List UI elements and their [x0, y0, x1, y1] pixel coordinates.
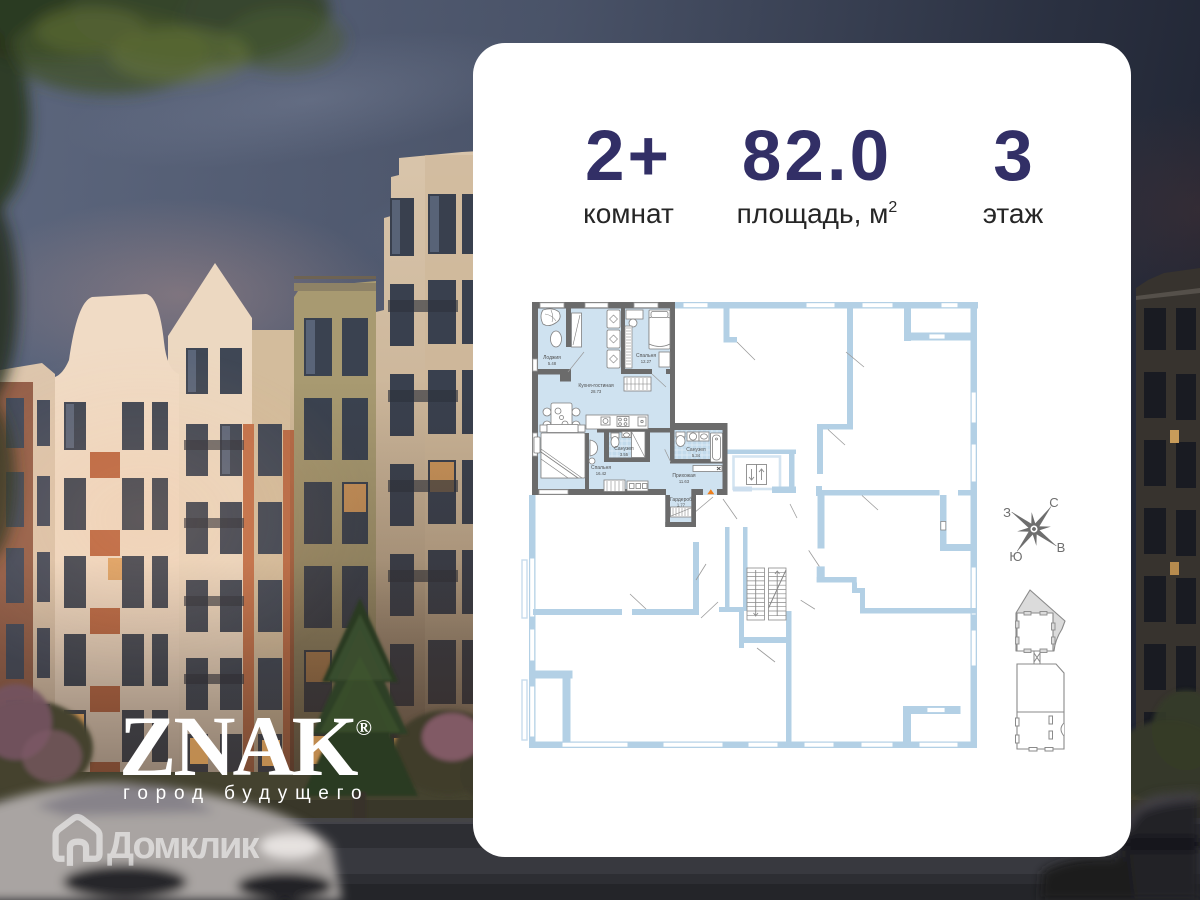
- svg-text:12.27: 12.27: [641, 359, 652, 364]
- svg-text:11.63: 11.63: [679, 479, 690, 484]
- svg-text:5.34: 5.34: [692, 453, 701, 458]
- svg-text:З: З: [1003, 505, 1011, 520]
- svg-text:1.77: 1.77: [677, 503, 686, 508]
- svg-text:5.48: 5.48: [548, 361, 557, 366]
- svg-text:Ю: Ю: [1009, 549, 1022, 564]
- svg-text:3.55: 3.55: [620, 452, 629, 457]
- svg-text:С: С: [1049, 495, 1058, 510]
- svg-text:В: В: [1057, 540, 1066, 555]
- svg-text:16.42: 16.42: [596, 471, 607, 476]
- svg-text:28.73: 28.73: [591, 389, 602, 394]
